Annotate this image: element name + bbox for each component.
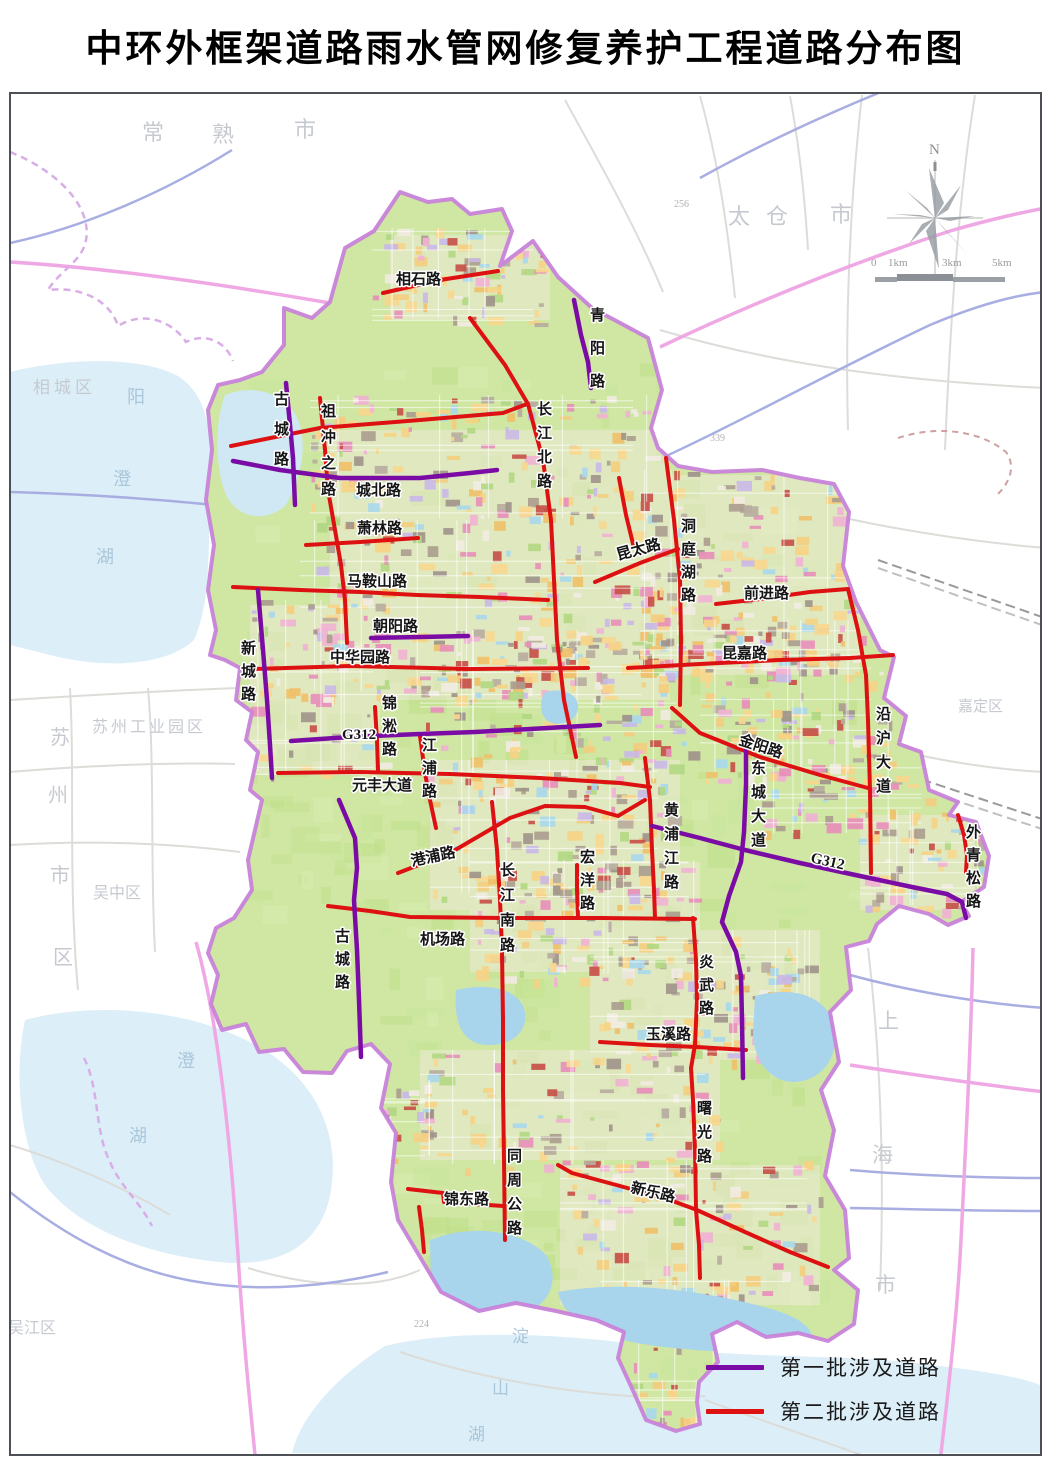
city-block bbox=[264, 1363, 279, 1367]
terrain-patch bbox=[271, 854, 292, 864]
city-block bbox=[202, 1290, 210, 1296]
city-block bbox=[853, 758, 864, 762]
city-block bbox=[447, 456, 460, 460]
city-block bbox=[572, 957, 586, 962]
map-decor: 路 bbox=[664, 873, 680, 891]
city-block bbox=[470, 1116, 475, 1124]
street-line bbox=[354, 1080, 355, 1156]
street-line bbox=[560, 1209, 807, 1210]
street-line bbox=[640, 493, 859, 494]
street-line bbox=[570, 1050, 571, 1164]
map-decor: 路 bbox=[241, 685, 257, 703]
city-block bbox=[577, 546, 581, 553]
city-block bbox=[313, 630, 317, 635]
city-block bbox=[506, 837, 510, 843]
city-block bbox=[662, 1109, 670, 1119]
city-block bbox=[586, 791, 592, 794]
street-line bbox=[257, 600, 258, 771]
city-block bbox=[851, 539, 856, 548]
city-block bbox=[478, 911, 482, 916]
city-block bbox=[419, 564, 435, 571]
city-block bbox=[253, 1322, 260, 1329]
city-block bbox=[317, 633, 322, 642]
terrain-patch bbox=[524, 1211, 557, 1227]
city-block bbox=[375, 542, 391, 552]
region-label: 256 bbox=[674, 199, 689, 210]
city-block bbox=[762, 801, 775, 807]
street-line bbox=[250, 767, 374, 768]
city-block bbox=[805, 966, 819, 974]
city-block bbox=[456, 264, 467, 271]
city-block bbox=[702, 705, 712, 708]
city-block bbox=[744, 506, 759, 517]
city-block bbox=[833, 517, 847, 527]
city-block bbox=[660, 587, 663, 597]
street-line bbox=[600, 1281, 790, 1282]
terrain-patch bbox=[399, 736, 411, 748]
city-block bbox=[663, 1411, 671, 1416]
road-label: G312 bbox=[342, 727, 376, 743]
terrain-patch bbox=[384, 371, 406, 380]
city-block bbox=[692, 669, 700, 677]
street-line bbox=[461, 760, 462, 893]
city-block bbox=[461, 806, 475, 815]
city-block bbox=[448, 675, 462, 682]
city-block bbox=[316, 703, 332, 707]
map-decor: 江 bbox=[422, 736, 437, 754]
city-block bbox=[648, 634, 654, 642]
city-block bbox=[420, 677, 431, 681]
city-block bbox=[522, 942, 529, 948]
street-line bbox=[215, 1260, 216, 1365]
city-block bbox=[461, 435, 468, 438]
city-block bbox=[252, 1336, 261, 1346]
city-block bbox=[354, 456, 363, 466]
city-block bbox=[781, 1342, 791, 1352]
city-block bbox=[568, 1192, 576, 1196]
map-decor: 古 bbox=[274, 390, 289, 408]
city-block bbox=[721, 550, 735, 560]
city-block bbox=[346, 522, 354, 529]
street-line bbox=[310, 407, 633, 408]
road-label: 新城路 bbox=[241, 639, 257, 703]
city-block bbox=[622, 715, 632, 722]
city-block bbox=[401, 428, 409, 437]
city-block bbox=[597, 628, 604, 633]
map-decor: 沿 bbox=[876, 706, 891, 723]
city-block bbox=[866, 565, 881, 574]
map-decor: 城 bbox=[274, 420, 289, 438]
city-block bbox=[482, 966, 489, 972]
street-line bbox=[209, 1260, 210, 1365]
city-block bbox=[442, 897, 448, 903]
city-block bbox=[474, 781, 484, 790]
street-line bbox=[429, 1080, 430, 1156]
city-block bbox=[422, 1119, 435, 1124]
map-decor: 江 bbox=[500, 886, 515, 904]
street-line bbox=[330, 1121, 425, 1122]
street-line bbox=[846, 700, 847, 833]
map-decor: 沪 bbox=[876, 729, 891, 747]
city-block bbox=[328, 605, 340, 608]
city-block bbox=[669, 764, 685, 774]
city-block bbox=[942, 884, 953, 888]
city-block bbox=[495, 788, 510, 798]
city-block bbox=[251, 1315, 259, 1326]
city-block bbox=[724, 1042, 732, 1047]
region-label: 山 bbox=[492, 1379, 509, 1398]
city-block bbox=[409, 427, 412, 431]
city-block bbox=[698, 595, 712, 602]
city-block bbox=[603, 736, 611, 741]
city-block bbox=[441, 746, 448, 752]
city-block bbox=[607, 461, 611, 466]
map-decor: 路 bbox=[697, 1147, 713, 1165]
city-block bbox=[722, 624, 730, 630]
city-block bbox=[876, 822, 889, 829]
street-line bbox=[494, 1050, 495, 1164]
city-block bbox=[747, 967, 750, 972]
street-line bbox=[572, 1050, 573, 1164]
city-block bbox=[920, 726, 934, 736]
terrain-patch bbox=[413, 1167, 450, 1186]
map-decor: 南 bbox=[500, 911, 515, 929]
map-decor bbox=[640, 292, 1045, 468]
legend-item: 第二批涉及道路 bbox=[706, 1396, 941, 1426]
street-line bbox=[889, 810, 890, 905]
city-block bbox=[628, 621, 634, 625]
city-block bbox=[830, 764, 841, 775]
city-block bbox=[539, 261, 547, 268]
city-block bbox=[476, 615, 487, 619]
city-block bbox=[647, 944, 659, 949]
city-block bbox=[362, 1106, 377, 1116]
city-block bbox=[804, 572, 816, 576]
city-block bbox=[513, 1123, 527, 1128]
map-decor: 祖 bbox=[320, 402, 336, 420]
city-block bbox=[452, 419, 457, 430]
city-block bbox=[588, 1194, 596, 1200]
city-block bbox=[519, 615, 532, 620]
city-block bbox=[656, 1124, 660, 1128]
city-block bbox=[310, 725, 317, 732]
city-block bbox=[295, 1356, 308, 1364]
terrain-patch bbox=[417, 1043, 437, 1050]
city-block bbox=[590, 1118, 594, 1121]
legend-swatch bbox=[706, 1365, 764, 1370]
city-block bbox=[401, 549, 412, 556]
street-line bbox=[560, 1168, 807, 1169]
city-block bbox=[272, 1298, 276, 1307]
city-block bbox=[667, 1067, 671, 1073]
street-line bbox=[860, 872, 974, 873]
terrain-patch bbox=[772, 1079, 783, 1096]
terrain-patch bbox=[426, 977, 443, 1000]
city-block bbox=[745, 636, 754, 642]
street-line bbox=[473, 630, 474, 782]
city-block bbox=[790, 1339, 794, 1344]
road-label: 曙光路 bbox=[696, 1100, 713, 1165]
city-block bbox=[188, 1347, 193, 1351]
street-line bbox=[417, 520, 418, 691]
map-decor: 大 bbox=[751, 807, 766, 825]
city-block bbox=[434, 641, 445, 645]
terrain-patch bbox=[391, 821, 420, 830]
city-block bbox=[519, 506, 533, 517]
city-block bbox=[766, 633, 772, 643]
city-block bbox=[580, 978, 591, 987]
city-block bbox=[618, 820, 634, 829]
legend-label: 第一批涉及道路 bbox=[780, 1352, 941, 1382]
city-block bbox=[749, 1291, 756, 1295]
city-block bbox=[605, 696, 618, 700]
city-block bbox=[721, 698, 726, 706]
terrain-patch bbox=[606, 386, 618, 396]
map-decor: 路 bbox=[966, 892, 982, 910]
terrain-patch bbox=[380, 797, 403, 805]
city-block bbox=[783, 724, 790, 728]
city-block bbox=[485, 954, 500, 963]
city-block bbox=[631, 854, 644, 861]
city-block bbox=[508, 643, 514, 647]
city-block bbox=[520, 900, 526, 904]
city-block bbox=[586, 650, 595, 658]
city-block bbox=[840, 626, 845, 633]
city-block bbox=[568, 790, 576, 798]
city-block bbox=[670, 1184, 684, 1188]
city-block bbox=[401, 522, 414, 527]
scale-segment bbox=[897, 274, 953, 281]
map-decor: 路 bbox=[500, 936, 516, 954]
city-block bbox=[497, 685, 508, 689]
city-block bbox=[521, 883, 528, 889]
city-block bbox=[647, 1053, 651, 1058]
city-block bbox=[587, 489, 594, 494]
city-block bbox=[507, 413, 515, 422]
city-block bbox=[767, 650, 783, 659]
city-block bbox=[423, 238, 430, 247]
map-decor: 庭 bbox=[681, 540, 697, 558]
map-decor: 古 bbox=[335, 927, 350, 945]
city-block bbox=[718, 486, 726, 490]
city-block bbox=[351, 1104, 356, 1107]
city-block bbox=[540, 876, 549, 884]
city-block bbox=[646, 1408, 656, 1419]
street-line bbox=[180, 1296, 294, 1297]
city-block bbox=[624, 751, 639, 758]
street-line bbox=[860, 893, 974, 894]
road-label: 机场路 bbox=[420, 930, 466, 948]
city-block bbox=[742, 542, 748, 549]
terrain-patch bbox=[381, 1016, 413, 1024]
city-block bbox=[696, 563, 702, 568]
city-block bbox=[641, 1081, 653, 1085]
city-block bbox=[809, 1285, 819, 1291]
city-block bbox=[587, 495, 591, 499]
map-decor: 江 bbox=[537, 424, 552, 442]
city-block bbox=[827, 823, 842, 833]
street-line bbox=[300, 694, 642, 695]
region-label: 上 bbox=[878, 1009, 899, 1033]
city-block bbox=[761, 962, 771, 973]
street-line bbox=[330, 1102, 425, 1103]
city-block bbox=[730, 636, 737, 644]
road-label: 元丰大道 bbox=[352, 776, 412, 794]
terrain-patch bbox=[692, 800, 709, 821]
city-block bbox=[621, 433, 626, 440]
legend-label: 第二批涉及道路 bbox=[780, 1396, 941, 1426]
city-block bbox=[425, 480, 436, 490]
city-block bbox=[536, 269, 550, 273]
city-block bbox=[361, 431, 376, 441]
city-block bbox=[434, 479, 448, 482]
city-block bbox=[428, 546, 439, 557]
map-decor: 同 bbox=[507, 1148, 522, 1165]
city-block bbox=[947, 850, 956, 859]
terrain-patch bbox=[262, 815, 270, 838]
city-block bbox=[763, 1167, 775, 1174]
map-decor bbox=[560, 1165, 820, 1305]
city-block bbox=[414, 1133, 430, 1142]
city-block bbox=[656, 633, 663, 640]
city-block bbox=[528, 921, 544, 930]
city-block bbox=[541, 578, 549, 583]
street-line bbox=[330, 1098, 425, 1099]
terrain-patch bbox=[356, 815, 372, 839]
scale-label: 3km bbox=[942, 257, 962, 269]
city-block bbox=[737, 552, 743, 559]
city-block bbox=[584, 746, 595, 753]
city-block bbox=[750, 677, 758, 684]
city-block bbox=[320, 624, 336, 631]
city-block bbox=[766, 692, 771, 698]
city-block bbox=[666, 984, 677, 994]
city-block bbox=[553, 943, 561, 954]
city-block bbox=[384, 433, 397, 437]
city-block bbox=[453, 714, 460, 719]
street-line bbox=[420, 1099, 705, 1100]
city-block bbox=[738, 772, 742, 778]
scale-label: 5km bbox=[992, 257, 1012, 269]
city-block bbox=[932, 818, 938, 829]
city-block bbox=[535, 563, 541, 569]
city-block bbox=[564, 614, 573, 624]
city-block bbox=[483, 530, 489, 541]
city-block bbox=[800, 641, 815, 649]
map-decor bbox=[10, 688, 240, 700]
city-block bbox=[408, 678, 422, 686]
map-decor: 阳 bbox=[590, 340, 605, 357]
street-line bbox=[310, 400, 633, 401]
city-block bbox=[656, 898, 669, 906]
legend-item: 第一批涉及道路 bbox=[706, 1352, 941, 1382]
terrain-patch bbox=[793, 1088, 806, 1107]
city-block bbox=[475, 693, 481, 699]
terrain-patch bbox=[255, 525, 280, 543]
city-block bbox=[602, 685, 614, 693]
city-block bbox=[558, 852, 573, 862]
street-line bbox=[300, 561, 642, 562]
city-block bbox=[598, 1199, 610, 1204]
map-decor: 路 bbox=[507, 1219, 523, 1237]
street-line bbox=[420, 1100, 705, 1101]
map-decor: 洞 bbox=[681, 518, 696, 535]
city-block bbox=[797, 662, 801, 670]
page: 中环外框架道路雨水管网修复养护工程道路分布图 bbox=[0, 0, 1051, 1467]
city-block bbox=[466, 419, 479, 424]
city-block bbox=[484, 929, 494, 934]
city-block bbox=[481, 515, 485, 519]
city-block bbox=[287, 606, 295, 615]
map-decor: 城 bbox=[335, 950, 350, 968]
city-block bbox=[379, 763, 393, 769]
road-label: 前进路 bbox=[744, 584, 790, 602]
map-decor: 路 bbox=[590, 372, 606, 390]
terrain-patch bbox=[263, 906, 288, 924]
region-label: 仓 bbox=[766, 204, 788, 229]
city-block bbox=[465, 779, 471, 786]
city-block bbox=[688, 751, 700, 760]
city-block bbox=[376, 449, 379, 454]
region-label: 海 bbox=[872, 1143, 893, 1167]
city-block bbox=[312, 503, 316, 513]
city-block bbox=[674, 1218, 686, 1226]
city-block bbox=[567, 831, 582, 841]
city-block bbox=[553, 874, 561, 883]
city-block bbox=[594, 488, 597, 497]
city-block bbox=[373, 296, 379, 301]
city-block bbox=[296, 1348, 305, 1352]
city-block bbox=[609, 1125, 613, 1132]
road-label: 炎武路 bbox=[699, 953, 715, 1017]
city-block bbox=[605, 863, 618, 869]
city-block bbox=[717, 1256, 722, 1265]
city-block bbox=[396, 1089, 401, 1099]
street-line bbox=[760, 807, 922, 808]
region-label: 澄 bbox=[177, 1051, 195, 1071]
city-block bbox=[942, 909, 951, 919]
street-line bbox=[430, 798, 658, 799]
city-block bbox=[841, 719, 845, 724]
city-block bbox=[335, 417, 346, 425]
street-line bbox=[310, 512, 633, 513]
city-block bbox=[474, 287, 487, 292]
scale-segment bbox=[953, 277, 1005, 282]
street-line bbox=[372, 231, 534, 232]
city-block bbox=[666, 749, 671, 757]
street-line bbox=[439, 395, 440, 519]
city-block bbox=[470, 515, 478, 526]
map-decor bbox=[660, 330, 1045, 388]
city-block bbox=[741, 664, 748, 668]
city-block bbox=[181, 1368, 186, 1372]
city-block bbox=[740, 1337, 748, 1343]
map-decor: 路 bbox=[321, 480, 337, 498]
map-decor: 洋 bbox=[580, 871, 595, 889]
city-block bbox=[641, 601, 644, 607]
city-block bbox=[394, 311, 402, 319]
city-block bbox=[551, 672, 559, 682]
city-block bbox=[415, 524, 424, 530]
city-block bbox=[813, 670, 821, 677]
city-block bbox=[344, 1119, 351, 1125]
city-block bbox=[612, 788, 616, 799]
city-block bbox=[659, 787, 665, 796]
city-block bbox=[655, 526, 667, 537]
city-block bbox=[799, 516, 812, 521]
terrain-patch bbox=[556, 737, 566, 753]
street-line bbox=[640, 577, 859, 578]
